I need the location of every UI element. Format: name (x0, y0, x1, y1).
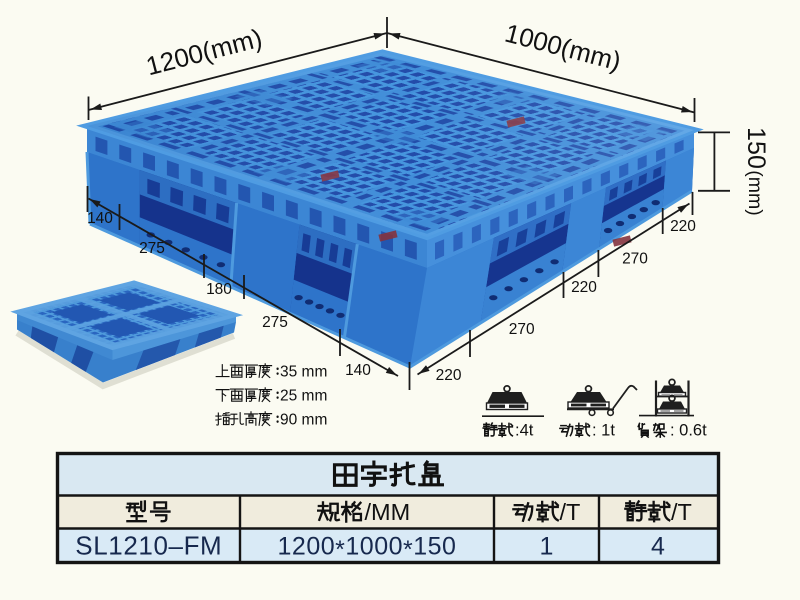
svg-text:275: 275 (139, 240, 165, 257)
svg-text:(mm): (mm) (744, 170, 766, 215)
svg-text:35 mm: 35 mm (280, 364, 327, 381)
svg-text:220: 220 (571, 279, 597, 296)
svg-text:180: 180 (206, 281, 232, 298)
svg-text:150: 150 (742, 127, 770, 169)
svg-text:: 0.6t: : 0.6t (670, 422, 707, 440)
svg-text:4: 4 (651, 533, 665, 561)
svg-text:25 mm: 25 mm (280, 388, 327, 405)
svg-text:270: 270 (622, 251, 648, 268)
svg-text:220: 220 (670, 218, 696, 235)
svg-text:270: 270 (509, 321, 535, 338)
svg-text:90 mm: 90 mm (280, 412, 327, 429)
svg-text:140: 140 (87, 210, 113, 227)
svg-text:275: 275 (262, 314, 288, 331)
svg-text:SL1210–FM: SL1210–FM (75, 531, 222, 561)
svg-text:1200*1000*150: 1200*1000*150 (278, 533, 457, 565)
svg-text:/T: /T (560, 499, 581, 525)
svg-text:/T: /T (671, 499, 692, 525)
svg-text:140: 140 (345, 362, 371, 379)
svg-text:: 1t: : 1t (592, 422, 615, 440)
svg-text:1: 1 (540, 533, 554, 561)
svg-text::4t: :4t (515, 422, 534, 440)
svg-text:220: 220 (436, 367, 462, 384)
svg-text:/MM: /MM (365, 499, 411, 525)
